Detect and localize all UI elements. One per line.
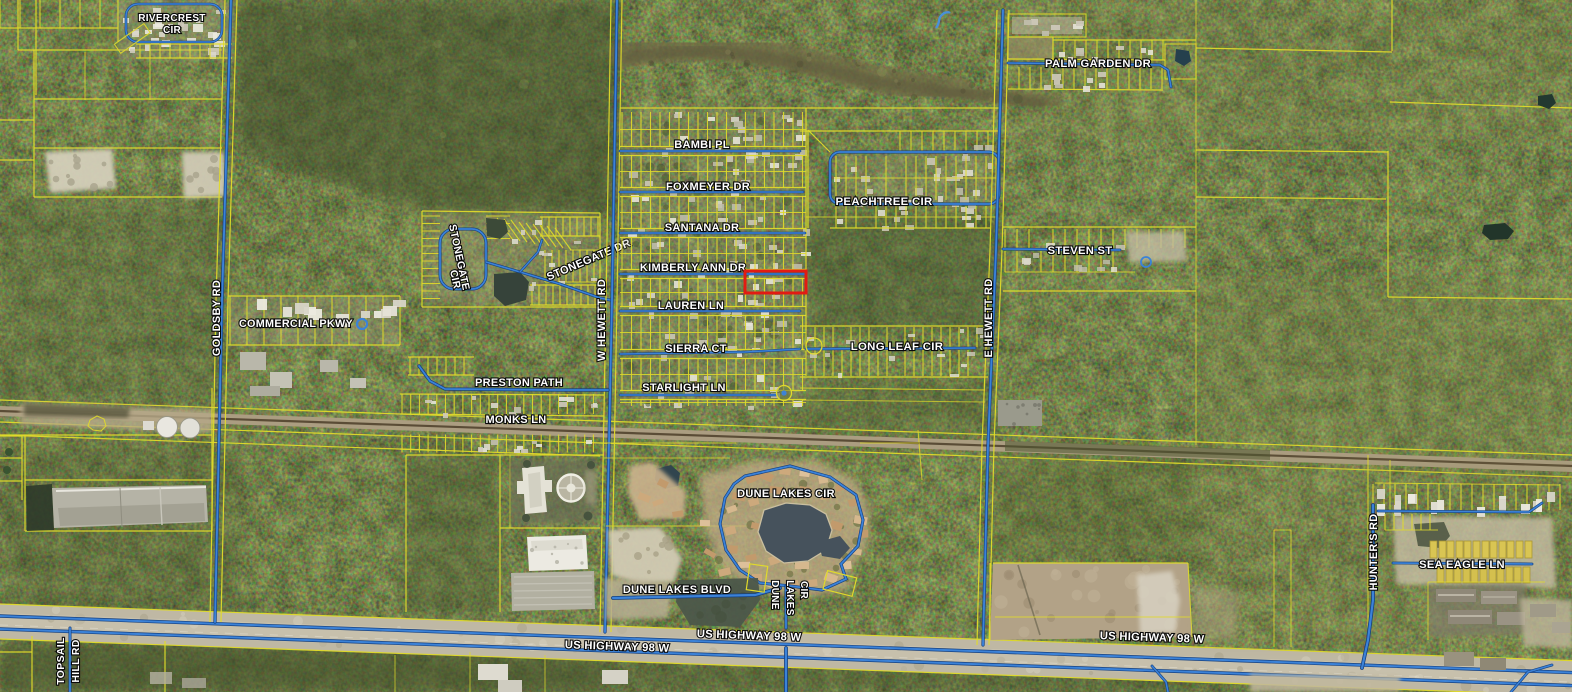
svg-text:DUNE: DUNE: [769, 580, 780, 610]
svg-text:CIR: CIR: [798, 581, 809, 600]
svg-text:MONKS LN: MONKS LN: [485, 414, 546, 426]
svg-text:DUNE LAKES BLVD: DUNE LAKES BLVD: [623, 584, 731, 596]
svg-text:PEACHTREE CIR: PEACHTREE CIR: [836, 196, 933, 208]
svg-text:TOPSAIL: TOPSAIL: [55, 637, 67, 685]
svg-text:GOLDSBY RD: GOLDSBY RD: [211, 280, 223, 356]
svg-text:BAMBI PL: BAMBI PL: [674, 139, 730, 151]
svg-text:HUNTER'S RD: HUNTER'S RD: [1368, 514, 1380, 591]
svg-text:STARLIGHT LN: STARLIGHT LN: [642, 382, 725, 394]
svg-text:DUNE LAKES CIR: DUNE LAKES CIR: [737, 488, 835, 500]
svg-text:LAKES: LAKES: [784, 580, 795, 615]
svg-text:SEA EAGLE LN: SEA EAGLE LN: [1419, 559, 1505, 571]
svg-text:PRESTON PATH: PRESTON PATH: [475, 377, 563, 389]
svg-text:KIMBERLY ANN DR: KIMBERLY ANN DR: [640, 262, 746, 274]
svg-text:CIR: CIR: [163, 25, 182, 36]
svg-text:FOXMEYER DR: FOXMEYER DR: [666, 181, 750, 193]
svg-text:LAUREN LN: LAUREN LN: [658, 300, 724, 312]
svg-text:LONG LEAF CIR: LONG LEAF CIR: [851, 341, 944, 353]
svg-text:SANTANA DR: SANTANA DR: [665, 222, 740, 234]
svg-text:RIVERCREST: RIVERCREST: [138, 13, 205, 24]
svg-text:PALM GARDEN DR: PALM GARDEN DR: [1045, 58, 1151, 70]
svg-text:E HEWETT RD: E HEWETT RD: [983, 278, 995, 357]
svg-text:W HEWETT RD: W HEWETT RD: [596, 279, 608, 361]
svg-text:COMMERCIAL PKWY: COMMERCIAL PKWY: [239, 318, 354, 330]
svg-text:HILL RD: HILL RD: [70, 639, 82, 682]
svg-text:SIERRA CT: SIERRA CT: [665, 343, 727, 355]
svg-text:STEVEN ST: STEVEN ST: [1048, 245, 1113, 257]
